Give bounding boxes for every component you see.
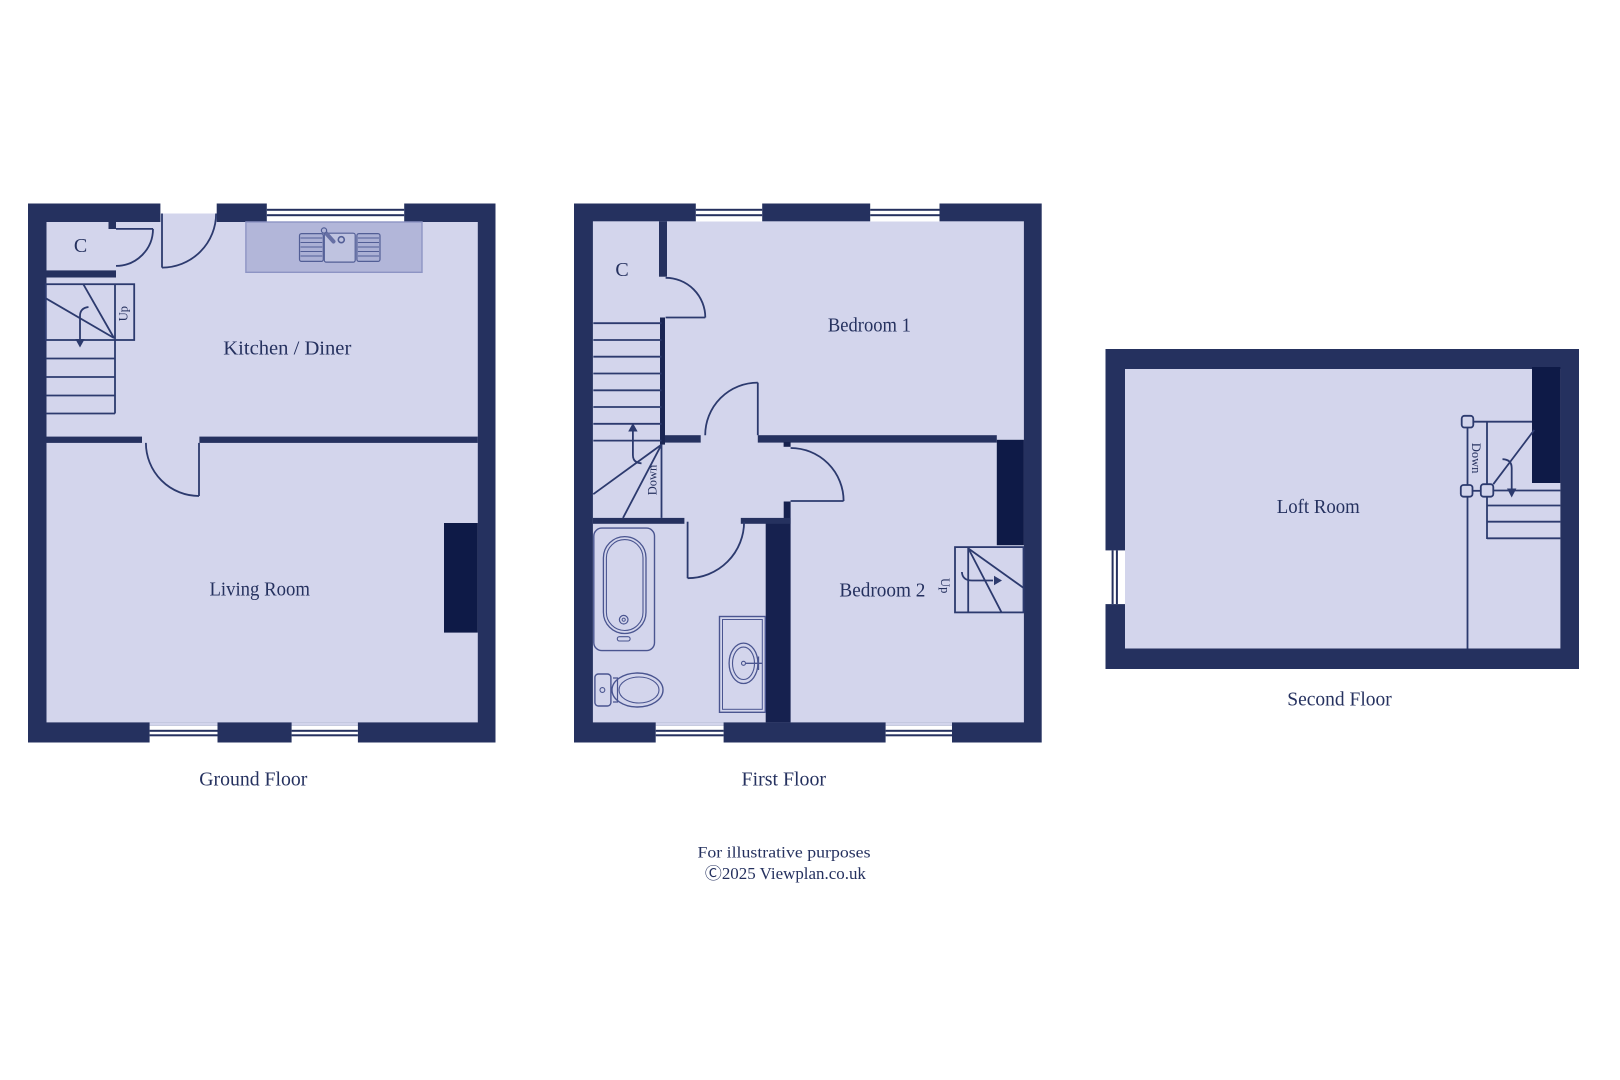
svg-text:Down: Down xyxy=(645,464,659,495)
svg-text:Ⓒ2025 Viewplan.co.uk: Ⓒ2025 Viewplan.co.uk xyxy=(705,864,867,883)
svg-text:For illustrative purposes: For illustrative purposes xyxy=(698,845,871,862)
svg-text:C: C xyxy=(615,259,628,281)
svg-text:Bedroom 1: Bedroom 1 xyxy=(828,315,911,337)
svg-text:Bedroom 2: Bedroom 2 xyxy=(839,580,925,602)
svg-text:C: C xyxy=(74,235,87,257)
svg-text:Up: Up xyxy=(116,306,130,321)
svg-text:Loft Room: Loft Room xyxy=(1277,496,1360,518)
svg-text:Down: Down xyxy=(1469,443,1483,474)
svg-text:First Floor: First Floor xyxy=(742,769,827,791)
svg-text:Second Floor: Second Floor xyxy=(1287,689,1392,711)
svg-text:Up: Up xyxy=(938,578,952,593)
svg-text:Living Room: Living Room xyxy=(209,579,310,601)
svg-text:Ground Floor: Ground Floor xyxy=(199,769,307,791)
svg-text:Kitchen / Diner: Kitchen / Diner xyxy=(223,338,351,360)
